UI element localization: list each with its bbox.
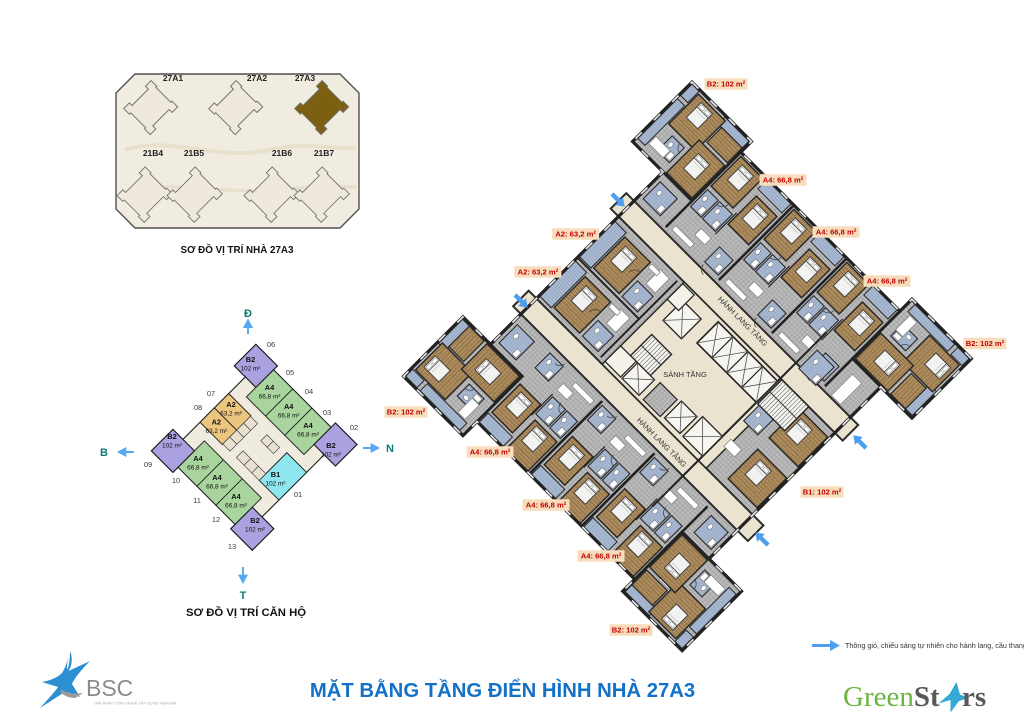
svg-text:BSC: BSC — [86, 675, 133, 701]
svg-text:21B7: 21B7 — [314, 148, 335, 158]
svg-text:A2: A2 — [212, 418, 221, 427]
svg-text:B: B — [100, 447, 108, 459]
svg-text:rs: rs — [962, 681, 986, 713]
svg-text:N: N — [386, 443, 394, 455]
svg-text:102 m²: 102 m² — [245, 527, 265, 534]
svg-text:A4: 66,8 m²: A4: 66,8 m² — [470, 448, 511, 457]
svg-text:B2: B2 — [167, 432, 176, 441]
svg-text:27A1: 27A1 — [163, 73, 184, 83]
svg-text:102 m²: 102 m² — [266, 481, 286, 488]
svg-text:66,8 m²: 66,8 m² — [187, 465, 209, 472]
svg-text:13: 13 — [228, 542, 236, 551]
svg-text:21B5: 21B5 — [184, 148, 205, 158]
svg-text:27A3: 27A3 — [295, 73, 316, 83]
svg-text:A4: A4 — [193, 454, 203, 463]
svg-text:A4: A4 — [231, 492, 241, 501]
svg-text:MẶT BẰNG TẦNG ĐIỂN HÌNH NHÀ 27: MẶT BẰNG TẦNG ĐIỂN HÌNH NHÀ 27A3 — [310, 678, 695, 702]
svg-text:03: 03 — [323, 408, 331, 417]
svg-text:B2: B2 — [250, 516, 259, 525]
svg-text:63,2 m²: 63,2 m² — [220, 411, 242, 418]
svg-text:A4: 66,8 m²: A4: 66,8 m² — [867, 277, 908, 286]
svg-text:06: 06 — [267, 340, 275, 349]
svg-text:09: 09 — [144, 460, 152, 469]
svg-text:B1: 102 m²: B1: 102 m² — [803, 488, 842, 497]
svg-text:102 m²: 102 m² — [241, 366, 261, 373]
svg-text:A4: 66,8 m²: A4: 66,8 m² — [581, 552, 622, 561]
svg-text:GreenSt: GreenSt — [843, 681, 940, 713]
svg-text:66,8 m²: 66,8 m² — [206, 484, 228, 491]
svg-text:B2: 102 m²: B2: 102 m² — [612, 626, 651, 635]
svg-text:A4: A4 — [284, 402, 294, 411]
svg-text:Thông gió, chiếu sáng tự nhiên: Thông gió, chiếu sáng tự nhiên cho hành … — [845, 641, 1024, 650]
svg-text:B2: 102 m²: B2: 102 m² — [387, 408, 426, 417]
svg-text:A4: 66,8 m²: A4: 66,8 m² — [526, 501, 567, 510]
svg-text:08: 08 — [194, 403, 202, 412]
svg-text:A4: A4 — [212, 473, 222, 482]
svg-text:66,8 m²: 66,8 m² — [259, 394, 281, 401]
svg-text:102 m²: 102 m² — [321, 452, 341, 459]
svg-text:B2: B2 — [246, 355, 255, 364]
svg-text:66,8 m²: 66,8 m² — [225, 503, 247, 510]
svg-text:SƠ ĐỒ VỊ TRÍ CĂN HỘ: SƠ ĐỒ VỊ TRÍ CĂN HỘ — [186, 606, 306, 619]
svg-text:SẢNH TẦNG: SẢNH TẦNG — [663, 369, 707, 379]
svg-text:T: T — [240, 590, 247, 602]
svg-text:A4: A4 — [303, 421, 313, 430]
svg-text:21B4: 21B4 — [143, 148, 164, 158]
svg-text:GIẢI PHÁP CÔNG NGHỆ XÂY DỰNG H: GIẢI PHÁP CÔNG NGHỆ XÂY DỰNG HIỆN ĐẠI — [94, 701, 176, 706]
svg-text:11: 11 — [193, 496, 201, 505]
svg-text:66,8 m²: 66,8 m² — [297, 432, 319, 439]
svg-text:B2: 102 m²: B2: 102 m² — [966, 339, 1005, 348]
svg-text:21B6: 21B6 — [272, 148, 293, 158]
svg-text:A4: 66,8 m²: A4: 66,8 m² — [816, 228, 857, 237]
svg-text:A2: A2 — [226, 400, 235, 409]
svg-text:66,8 m²: 66,8 m² — [278, 413, 300, 420]
svg-text:A2: 63,2 m²: A2: 63,2 m² — [518, 268, 559, 277]
svg-text:SƠ ĐỒ VỊ TRÍ NHÀ 27A3: SƠ ĐỒ VỊ TRÍ NHÀ 27A3 — [181, 244, 294, 256]
svg-text:B2: B2 — [326, 441, 335, 450]
svg-text:A4: 66,8 m²: A4: 66,8 m² — [763, 176, 804, 185]
svg-text:02: 02 — [350, 423, 358, 432]
svg-text:12: 12 — [212, 515, 220, 524]
svg-text:04: 04 — [305, 387, 313, 396]
svg-text:10: 10 — [172, 476, 180, 485]
svg-text:A4: A4 — [265, 383, 275, 392]
svg-text:B2: 102 m²: B2: 102 m² — [707, 80, 746, 89]
svg-text:102 m²: 102 m² — [162, 443, 182, 450]
svg-text:B1: B1 — [271, 470, 280, 479]
svg-text:A2: 63,2 m²: A2: 63,2 m² — [555, 230, 596, 239]
svg-text:01: 01 — [294, 490, 302, 499]
svg-text:63,2 m²: 63,2 m² — [205, 428, 227, 435]
svg-text:07: 07 — [207, 389, 215, 398]
svg-text:27A2: 27A2 — [247, 73, 268, 83]
svg-text:05: 05 — [286, 368, 294, 377]
svg-text:Đ: Đ — [244, 308, 252, 320]
